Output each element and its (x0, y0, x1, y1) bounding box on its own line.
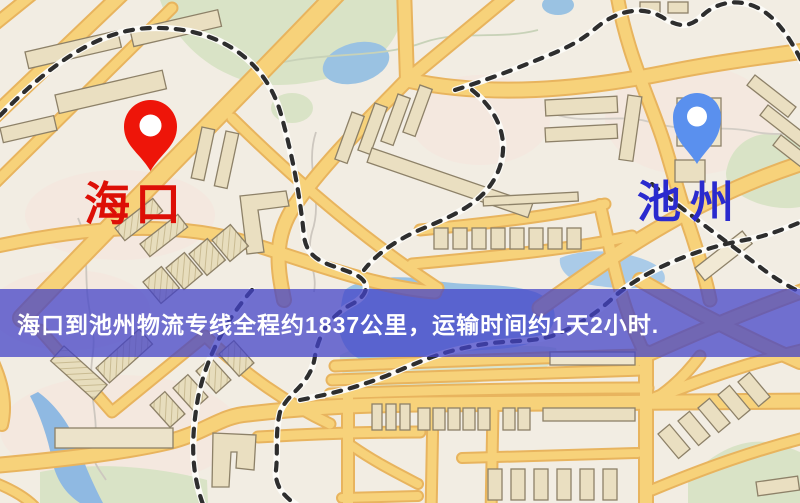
origin-city-label: 海口 (84, 181, 186, 227)
map-canvas (0, 0, 800, 503)
route-banner-text: 海口到池州物流专线全程约1837公里，运输时间约1天2小时. (17, 306, 659, 340)
route-banner: 海口到池州物流专线全程约1837公里，运输时间约1天2小时. (0, 289, 800, 357)
destination-city-label: 池州 (637, 181, 743, 225)
pin-hole (687, 107, 707, 127)
map-view[interactable]: 海口 池州 海口到池州物流专线全程约1837公里，运输时间约1天2小时. (0, 0, 800, 503)
pin-hole (140, 115, 162, 137)
